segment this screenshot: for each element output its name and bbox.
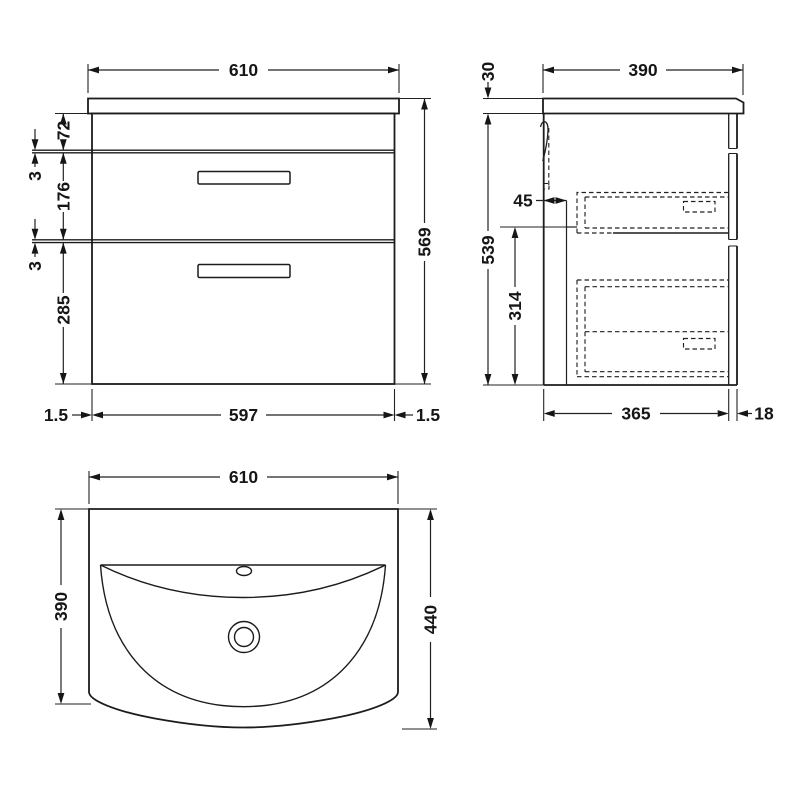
front-gap-upper-label: 3 [25,171,45,181]
basin-top-view: 610 390 440 [51,467,441,729]
basin-depth-label: 390 [51,592,71,621]
dim-front-drawer1: 176 [53,153,73,240]
side-lower-drawer-box [577,280,729,377]
dim-basin-width: 610 [89,467,398,487]
front-carcass-width-label: 597 [229,405,258,425]
side-depth-label: 390 [628,60,657,80]
side-front-panel-label: 18 [754,404,774,424]
basin-outline [89,509,398,728]
side-runner-rail [567,201,578,386]
dim-front-gap-upper: 3 [25,129,45,181]
dim-front-height: 569 [415,99,435,385]
front-width-label: 610 [229,60,258,80]
dim-side-bottom: 365 18 [544,404,774,424]
side-wall-bracket [541,122,550,189]
dim-side-depth: 390 [543,60,743,80]
side-extension-lines [483,64,743,421]
front-drawer2-label: 285 [53,295,73,324]
front-top-rail-label: 72 [53,121,73,141]
front-drawer1-label: 176 [53,182,73,211]
front-edge-left-label: 1.5 [44,405,69,425]
front-view: 610 72 3 176 [25,60,440,425]
front-edge-right-label: 1.5 [416,405,441,425]
dim-front-top-rail: 72 [53,114,73,151]
dim-side-clearance: 314 [505,227,525,385]
basin-overall-depth-label: 440 [421,605,441,634]
dim-side-height: 539 [478,114,498,386]
dim-side-worktop: 30 [478,62,498,99]
dim-side-back-gap: 45 [513,191,566,211]
technical-drawing-page: 610 72 3 176 [0,0,800,800]
side-back-gap-label: 45 [513,191,533,211]
dim-front-gap-lower: 3 [25,219,45,271]
dim-front-drawer2: 285 [53,243,73,384]
front-cabinet [92,114,395,385]
side-clearance-label: 314 [505,291,525,320]
side-upper-drawer-box [577,193,729,234]
basin-width-label: 610 [229,467,258,487]
side-worktop-label: 30 [478,62,498,82]
side-upper-handle-cutout [684,202,716,213]
side-height-label: 539 [478,235,498,264]
dim-basin-overall-depth: 440 [421,509,441,729]
front-height-label: 569 [415,227,435,256]
front-gap-lower-label: 3 [25,261,45,271]
side-carcass-depth-label: 365 [621,404,650,424]
side-lower-handle-cutout [684,339,716,350]
dim-basin-depth: 390 [51,509,71,704]
dim-front-width: 610 [88,60,399,80]
side-drawer-fronts [729,114,737,386]
front-worktop [88,99,399,114]
side-view: 30 539 390 45 [478,60,774,424]
side-worktop [543,99,744,114]
vanity-dimension-drawing: 610 72 3 176 [0,0,800,800]
dim-front-bottom: 1.5 597 1.5 [44,405,441,425]
